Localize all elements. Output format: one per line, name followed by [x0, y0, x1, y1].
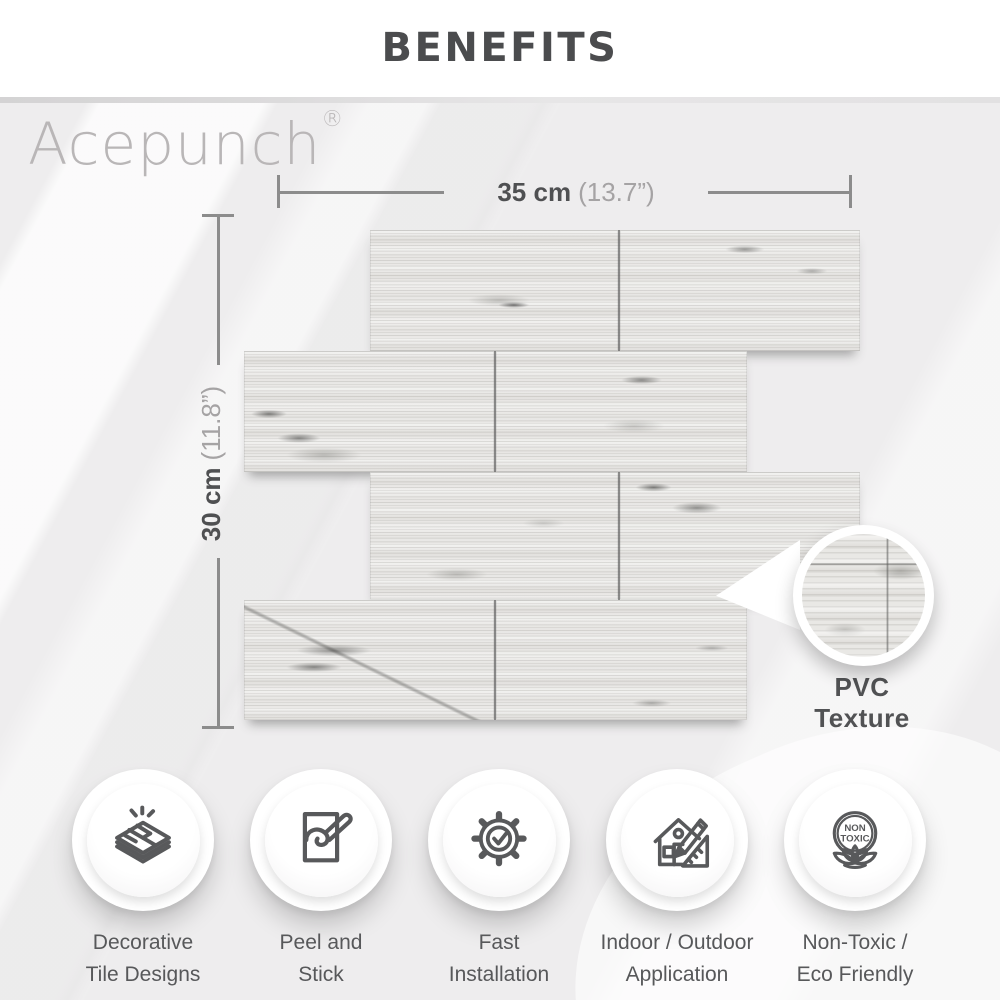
tile — [244, 351, 494, 472]
icon-circle-inner — [87, 784, 200, 897]
tile-row-1 — [370, 230, 860, 351]
width-dim-label: 35 cm(13.7”) — [444, 177, 708, 208]
benefit-label-line2: Eco Friendly — [797, 959, 914, 991]
brand-logo: Acepunch® — [28, 107, 344, 178]
width-dim-tick-right — [849, 175, 852, 208]
benefit-label-line1: Decorative — [86, 927, 201, 959]
benefit-label-line1: Indoor / Outdoor — [601, 927, 754, 959]
width-dim-line-right — [708, 191, 849, 194]
icon-circle — [428, 769, 570, 911]
icon-circle-inner — [265, 784, 378, 897]
height-dim-line-top — [217, 217, 220, 365]
benefit-label: Decorative Tile Designs — [86, 927, 201, 991]
badge-text-toxic: TOXIC — [840, 833, 869, 844]
stage-background: Acepunch® 35 cm(13.7”) 30 cm(11.8”) — [0, 97, 1000, 1000]
benefit-label: Indoor / Outdoor Application — [601, 927, 754, 991]
icon-circle-inner: NON TOXIC — [799, 784, 912, 897]
benefit-label-line1: Peel and — [280, 927, 363, 959]
benefit-label-line1: Non-Toxic / — [797, 927, 914, 959]
stage-top-shade — [0, 97, 1000, 103]
stacked-tiles-icon — [107, 804, 179, 876]
magnified-pvc-texture — [802, 534, 925, 657]
non-toxic-badge-icon: NON TOXIC — [818, 803, 892, 877]
benefit-label-line2: Application — [601, 959, 754, 991]
texture-callout-label: PVC Texture — [776, 672, 948, 734]
tile — [370, 472, 618, 600]
tile — [618, 230, 860, 351]
icon-circle — [72, 769, 214, 911]
header-band: BENEFITS — [0, 0, 1000, 97]
width-value: 35 cm — [497, 177, 571, 207]
tile — [370, 230, 618, 351]
callout-line2: Texture — [776, 703, 948, 734]
width-dim-line-left — [280, 191, 444, 194]
brand-name: Acepunch — [28, 110, 321, 178]
icon-circle-inner — [621, 784, 734, 897]
gear-check-icon — [464, 805, 534, 875]
height-dim-label: 30 cm(11.8”) — [196, 385, 227, 540]
tile — [244, 600, 494, 720]
icon-circle — [606, 769, 748, 911]
tile — [494, 600, 747, 720]
benefit-label: Non-Toxic / Eco Friendly — [797, 927, 914, 991]
benefit-peel-and-stick: Peel and Stick — [226, 769, 416, 991]
benefit-label-line1: Fast — [449, 927, 549, 959]
badge-text-non: NON — [844, 823, 865, 834]
benefit-non-toxic: NON TOXIC Non-Toxic / Eco Friendly — [760, 769, 950, 991]
benefit-label-line2: Installation — [449, 959, 549, 991]
benefit-fast-installation: Fast Installation — [404, 769, 594, 991]
benefit-indoor-outdoor: Indoor / Outdoor Application — [582, 769, 772, 991]
height-value: 30 cm — [196, 467, 226, 541]
benefit-label: Fast Installation — [449, 927, 549, 991]
benefit-decorative-tile-designs: Decorative Tile Designs — [48, 769, 238, 991]
callout-line1: PVC — [776, 672, 948, 703]
tile — [494, 351, 747, 472]
icon-circle-inner — [443, 784, 556, 897]
icon-circle: NON TOXIC — [784, 769, 926, 911]
tile-row-2 — [244, 351, 747, 472]
page-title: BENEFITS — [0, 0, 1000, 97]
benefits-infographic: BENEFITS Acepunch® 35 cm(13.7”) 30 cm(11… — [0, 0, 1000, 1000]
height-dim-tick-bottom — [202, 726, 234, 729]
width-inches: (13.7”) — [578, 177, 655, 207]
peel-and-stick-icon — [286, 805, 356, 875]
height-dim-line-bottom — [217, 558, 220, 726]
house-tools-icon — [641, 804, 713, 876]
benefit-label-line2: Stick — [280, 959, 363, 991]
icon-circle — [250, 769, 392, 911]
tile-row-4 — [244, 600, 747, 720]
texture-magnifier-circle — [793, 525, 934, 666]
registered-mark: ® — [321, 107, 344, 132]
benefit-label: Peel and Stick — [280, 927, 363, 991]
height-inches: (11.8”) — [196, 385, 226, 460]
benefit-label-line2: Tile Designs — [86, 959, 201, 991]
